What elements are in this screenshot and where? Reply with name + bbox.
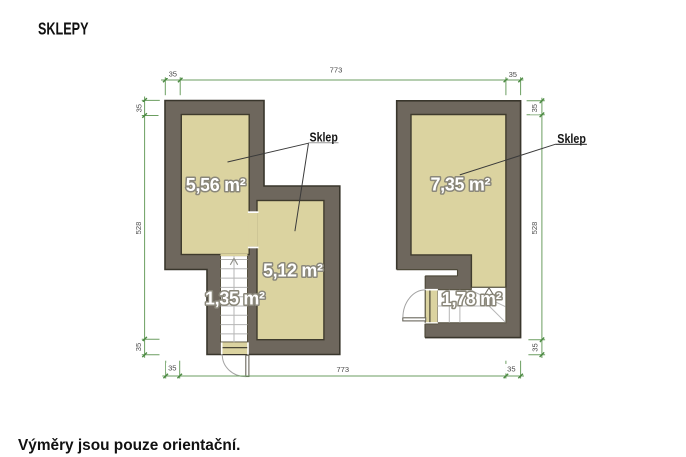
svg-text:Sklep: Sklep — [557, 131, 586, 146]
svg-text:SKLEPY: SKLEPY — [38, 19, 89, 39]
svg-text:35: 35 — [169, 69, 177, 78]
svg-text:Sklep: Sklep — [310, 130, 338, 145]
svg-text:35: 35 — [135, 104, 144, 112]
svg-text:7,35 m²: 7,35 m² — [431, 175, 491, 195]
svg-text:528: 528 — [530, 222, 539, 235]
svg-text:35: 35 — [530, 104, 539, 112]
svg-text:35: 35 — [507, 365, 515, 374]
svg-text:35: 35 — [134, 343, 143, 351]
svg-text:528: 528 — [134, 222, 143, 235]
svg-text:773: 773 — [330, 65, 343, 74]
svg-text:1,35 m²: 1,35 m² — [205, 289, 265, 309]
svg-text:5,12 m²: 5,12 m² — [263, 260, 323, 280]
svg-text:Výměry jsou pouze orientační.: Výměry jsou pouze orientační. — [18, 437, 240, 454]
svg-text:35: 35 — [509, 70, 517, 79]
svg-text:35: 35 — [531, 343, 540, 351]
svg-text:35: 35 — [168, 364, 176, 373]
svg-text:5,56 m²: 5,56 m² — [186, 175, 246, 195]
svg-text:1,78 m²: 1,78 m² — [442, 289, 502, 309]
svg-text:773: 773 — [336, 365, 349, 374]
